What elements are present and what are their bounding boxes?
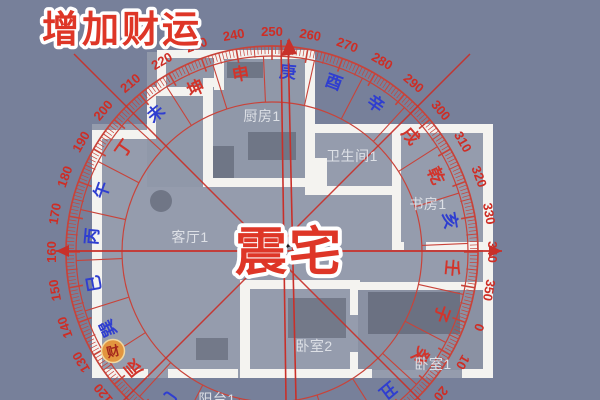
luopan-floorplan-overlay: 0102030405060708090100110120130140150160… (0, 0, 600, 400)
tick (67, 234, 78, 235)
tick (67, 273, 75, 274)
tick (121, 387, 127, 392)
degree-label: 210 (117, 70, 143, 95)
tick (77, 185, 85, 188)
tick (68, 223, 76, 224)
degree-label: 250 (261, 24, 283, 39)
room-label: 卧室2 (295, 338, 332, 354)
tick (71, 293, 79, 295)
tick (73, 199, 84, 202)
house-type-label: 震宅 (235, 224, 343, 282)
degree-label: 160 (44, 241, 59, 263)
tick (78, 318, 91, 323)
tick (80, 323, 87, 326)
tick (338, 58, 343, 71)
kitchen-counter (248, 132, 296, 160)
degree-label: 240 (222, 26, 246, 45)
wall-study-left-v (392, 133, 401, 250)
tick (75, 310, 83, 312)
tick (72, 202, 80, 204)
tick (419, 114, 425, 119)
tick (322, 53, 325, 64)
tick (81, 175, 88, 178)
tick (69, 216, 83, 218)
tick (76, 313, 84, 315)
mountain-divider (353, 379, 378, 400)
wall-study-bottom-a (392, 242, 404, 250)
degree-label: 150 (46, 278, 65, 302)
degree-label: 180 (54, 164, 76, 190)
mountain-char: 亥 (439, 210, 462, 230)
degree-label: 270 (335, 34, 361, 56)
degree-label: 260 (298, 26, 322, 45)
wall-bathtub (313, 158, 327, 188)
tick (121, 112, 127, 117)
tick (75, 192, 83, 194)
tick (374, 75, 378, 82)
tick (394, 90, 399, 96)
wall-bed-div-a (350, 285, 358, 315)
tick (67, 230, 75, 231)
tick (67, 266, 75, 267)
degree-label: 300 (428, 97, 453, 123)
tick (407, 101, 412, 107)
degree-label: 280 (369, 49, 395, 73)
tick (68, 276, 76, 277)
mountain-char: 乙 (156, 387, 181, 400)
tick (80, 178, 87, 181)
tick (82, 172, 89, 175)
tick (134, 99, 139, 105)
degree-label: 20 (431, 383, 452, 400)
degree-label: 190 (69, 129, 93, 155)
room-label: 卧室1 (414, 356, 451, 372)
degree-label: 200 (90, 97, 115, 123)
tick (84, 333, 91, 336)
tick (119, 384, 125, 389)
mountain-char: 酉 (322, 71, 344, 95)
wall-kitchen-left-v (203, 80, 213, 187)
wall-bottom-b (168, 369, 238, 378)
tick (76, 188, 84, 190)
wall-kitchen-bottom-h (203, 178, 315, 187)
tick (73, 302, 84, 305)
tick (365, 70, 369, 77)
tick (317, 51, 319, 59)
tick (67, 238, 75, 239)
tick (82, 329, 89, 332)
wall-bottom-c (248, 369, 350, 378)
tick (320, 52, 322, 60)
room-label: 阳台1 (198, 391, 235, 400)
tick (388, 85, 393, 91)
mountain-divider (317, 395, 331, 400)
tick (119, 114, 125, 119)
wall-kitchen-step (203, 78, 224, 87)
tick (68, 280, 76, 281)
wall-mid-v (240, 280, 250, 378)
tick (417, 112, 423, 117)
mountain-char: 巳 (83, 273, 105, 293)
degree-label: 170 (46, 202, 65, 226)
mountain-char: 壬 (442, 258, 462, 277)
tick (354, 65, 359, 75)
tick (380, 79, 384, 86)
tick (346, 61, 349, 68)
tick (417, 387, 423, 392)
tick (391, 87, 396, 93)
tick (71, 206, 79, 208)
tick (69, 220, 77, 221)
tick (72, 300, 80, 302)
room-label: 卫生间1 (326, 148, 378, 164)
tick (77, 316, 85, 319)
tick (70, 290, 78, 292)
tick (84, 168, 91, 171)
room-label: 书房1 (409, 196, 446, 212)
tick (70, 213, 78, 215)
degree-label: 120 (90, 381, 115, 400)
tick (330, 55, 332, 63)
mountain-char: 辛 (363, 91, 388, 117)
screenshot-root: 0102030405060708090100110120130140150160… (0, 0, 600, 400)
tick (419, 384, 425, 389)
tick (336, 57, 339, 65)
mountain-divider (341, 78, 362, 119)
tick (383, 81, 387, 88)
degree-label: 140 (54, 315, 76, 341)
tick (74, 195, 82, 197)
mountain-char: 丑 (375, 378, 400, 400)
tick (359, 67, 363, 74)
balcony-cabinet (196, 338, 228, 360)
tick (132, 101, 137, 107)
tick (327, 54, 329, 62)
tick (71, 209, 79, 211)
tick (377, 77, 381, 84)
wall-bottom-d (350, 369, 372, 378)
room-label: 厨房1 (243, 108, 280, 124)
tick (67, 269, 78, 270)
tick (69, 285, 83, 287)
degree-label: 290 (401, 70, 427, 95)
tick (349, 62, 352, 69)
mountain-char: 申 (230, 62, 250, 85)
tick (368, 72, 372, 79)
mountain-char: 丙 (82, 227, 102, 246)
room-label: 客厅1 (171, 229, 208, 245)
tick (68, 227, 76, 228)
tick (404, 99, 409, 105)
tick (71, 297, 79, 299)
tick (343, 60, 346, 67)
degree-label: 130 (69, 349, 93, 375)
tick (333, 56, 335, 64)
tick (69, 283, 77, 284)
tick (74, 307, 82, 309)
tick (362, 68, 366, 75)
living-table (150, 190, 172, 212)
tick (81, 326, 88, 329)
tick (78, 182, 91, 187)
page-title: 增加财运 (42, 9, 202, 50)
tick (353, 64, 356, 71)
